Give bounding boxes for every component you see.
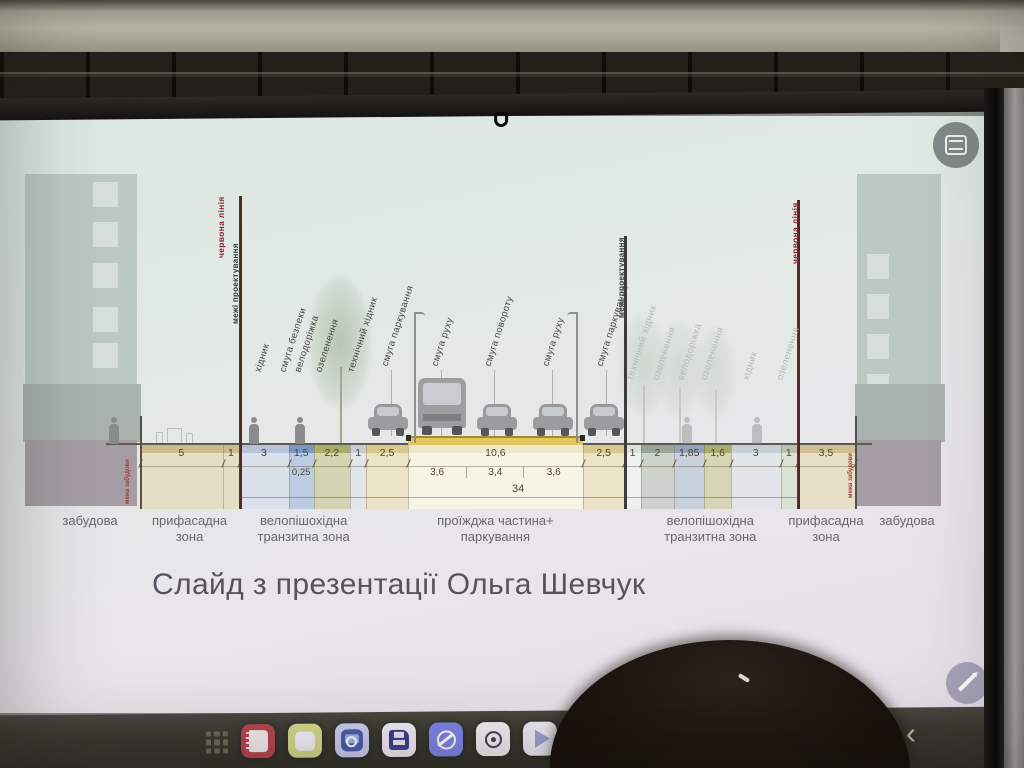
grid-dot [214,731,219,736]
gallery-app-icon[interactable] [335,723,369,757]
gallery-glyph [341,729,363,751]
car-wl [481,428,489,436]
car-glass [542,407,564,416]
camera-app-icon[interactable] [476,722,510,756]
dimension-cell: 1 [350,445,367,509]
planet-glyph [437,730,456,749]
car-wl [537,428,545,436]
pedestrian-figure [109,417,119,444]
building-base [25,440,137,506]
car-wl [588,428,596,436]
building-base [857,440,941,506]
lane-dimension-value: 3,6 [523,467,583,478]
tree-trunk [715,390,717,443]
building-right [857,174,941,506]
pencil-icon [958,674,975,691]
dimension-value: 1,5 [289,447,314,459]
building-mid [23,384,141,442]
strip-label: смуга руху [429,316,456,368]
car-front-view [584,404,624,436]
grid-dot [214,748,219,753]
building-window [867,254,889,279]
car-wr [505,428,513,436]
dimension-value: 5 [140,447,223,459]
hair-clip [738,673,750,683]
dimension-cell: 1 [781,445,798,509]
dimension-cell: 2,5 [366,445,407,509]
grid-dot [223,748,228,753]
slide-canvas: Слайд з презентації Ольга Шевчук 5131,50… [0,116,984,713]
total-dimension-value: 34 [239,483,797,495]
screen-handle [494,112,508,127]
car-front-view [533,404,573,436]
zone-label: проїжджа частина+ паркування [405,513,585,546]
browser-app-icon[interactable] [429,722,463,756]
car-wr [612,428,620,436]
car-wl [372,428,380,436]
dimension-value: 2 [641,447,674,459]
dimension-line [140,466,855,467]
dimension-value: 1,85 [674,447,705,459]
car-wr [396,428,404,436]
dimension-value: 1 [781,447,798,459]
dimension-cell: 1,50,25 [289,445,314,509]
dimension-cell: 1,85 [674,445,705,509]
dimension-value: 1 [223,447,240,459]
building-boundary-line [140,416,142,509]
building-window [867,334,889,359]
building-window [93,182,118,207]
strip-label: смуга руху [540,316,567,368]
building-window [867,294,889,319]
boundary-label: червона лінія [215,197,227,259]
notes-app-icon[interactable] [241,724,275,758]
bus-wl [422,426,432,435]
table [167,428,182,442]
apps-grid-icon[interactable] [206,731,228,753]
grid-dot [223,731,228,736]
lane-dimension-value: 3,4 [466,467,523,478]
dock-icons [241,721,604,758]
memo-glyph [295,732,315,751]
building-left [25,174,137,506]
boundary-label: межа забудови [122,459,134,504]
grid-dot [214,740,219,745]
boundary-label: червона лінія [789,203,801,265]
car-glass [486,407,508,416]
dimension-value: 2,5 [366,447,407,459]
notebook-glyph [249,730,268,752]
strip-label: хідник [253,342,274,374]
building-tower [25,174,137,386]
dimension-cell: 2 [641,445,674,509]
dimension-cell: 3 [731,445,781,509]
building-window [93,222,118,247]
building-window [93,307,118,332]
dimension-cell: 2,5 [583,445,624,509]
road-surface [408,436,583,445]
display-bezel [984,88,1004,768]
bus-stripe [423,414,461,421]
grid-dot [223,740,228,745]
dimension-value: 2,2 [314,447,350,459]
strip-label: смуга повороту [482,295,516,368]
chair [156,432,163,443]
boundary-label: межі проектування [230,243,242,324]
dimension-value: 3 [731,447,781,459]
photo-of-presentation-room: Слайд з презентації Ольга Шевчук 5131,50… [0,0,1024,768]
dimension-cell: 10,63,63,43,6 [408,445,583,509]
strip-label: хідник [740,350,761,382]
cafe-furniture [156,424,194,444]
display-screen: Слайд з презентації Ольга Шевчук 5131,50… [0,116,984,713]
tree-trunk [679,388,681,443]
dimension-value: 10,6 [408,447,583,459]
lane-dimension-value: 3,6 [408,467,467,478]
dimension-cell: 5 [140,445,223,509]
ceiling [0,0,1024,58]
building-window [93,263,118,288]
building-mid [855,384,945,442]
slides-panel-button[interactable] [933,122,979,168]
tree-trunk [643,385,645,443]
camera-lens-glyph [485,731,502,748]
zone-label: велопішохідна транзитна зона [214,513,394,546]
zone-label: забудова [817,513,984,529]
dimension-cell: 1 [223,445,240,509]
building-tower [857,174,941,386]
tree-trunk [340,367,342,443]
slide-caption: Слайд з презентації Ольга Шевчук [152,568,646,602]
memo-app-icon[interactable] [288,724,322,758]
building-window [93,343,118,368]
dimension-value: 1,6 [704,447,730,459]
floppy-disk-glyph [389,730,409,750]
dimension-cell: 2,2 [314,445,350,509]
dimension-value: 3 [239,447,289,459]
grid-dot [206,740,211,745]
total-dimension-line [239,497,797,498]
dimension-subvalue: 0,25 [289,467,314,478]
dimension-value: 2,5 [583,447,624,459]
strip-label: смуга паркування [380,284,417,368]
car-glass [593,407,615,416]
bus-wr [452,426,462,435]
dimension-cell: 1,6 [704,445,730,509]
bus-glass [423,383,461,405]
back-icon[interactable]: ‹ [906,719,916,749]
grid-dot [206,732,211,737]
chair [186,433,193,443]
grid-dot [206,748,211,753]
lamp-post [576,312,578,443]
dimension-value: 1 [350,447,367,459]
pedestrian-figure [752,417,762,444]
car-glass [377,407,399,416]
lane-dimensions: 3,63,43,6 [408,467,583,478]
car-wr [561,428,569,436]
floppy-save-app-icon[interactable] [382,723,416,757]
pedestrian-figure [682,417,692,444]
car-front-view [477,404,517,436]
dimension-cell: 3 [239,445,289,509]
bus-front-view [416,378,468,436]
car-front-view [368,404,408,436]
edit-pencil-button[interactable] [946,662,988,704]
screen-side-edge [1004,88,1024,768]
pedestrian-figure [295,417,305,444]
pedestrian-figure [249,417,259,444]
list-panel-icon [945,135,967,155]
play-triangle-glyph [535,730,550,748]
boundary-label: межа забудови [845,453,857,498]
